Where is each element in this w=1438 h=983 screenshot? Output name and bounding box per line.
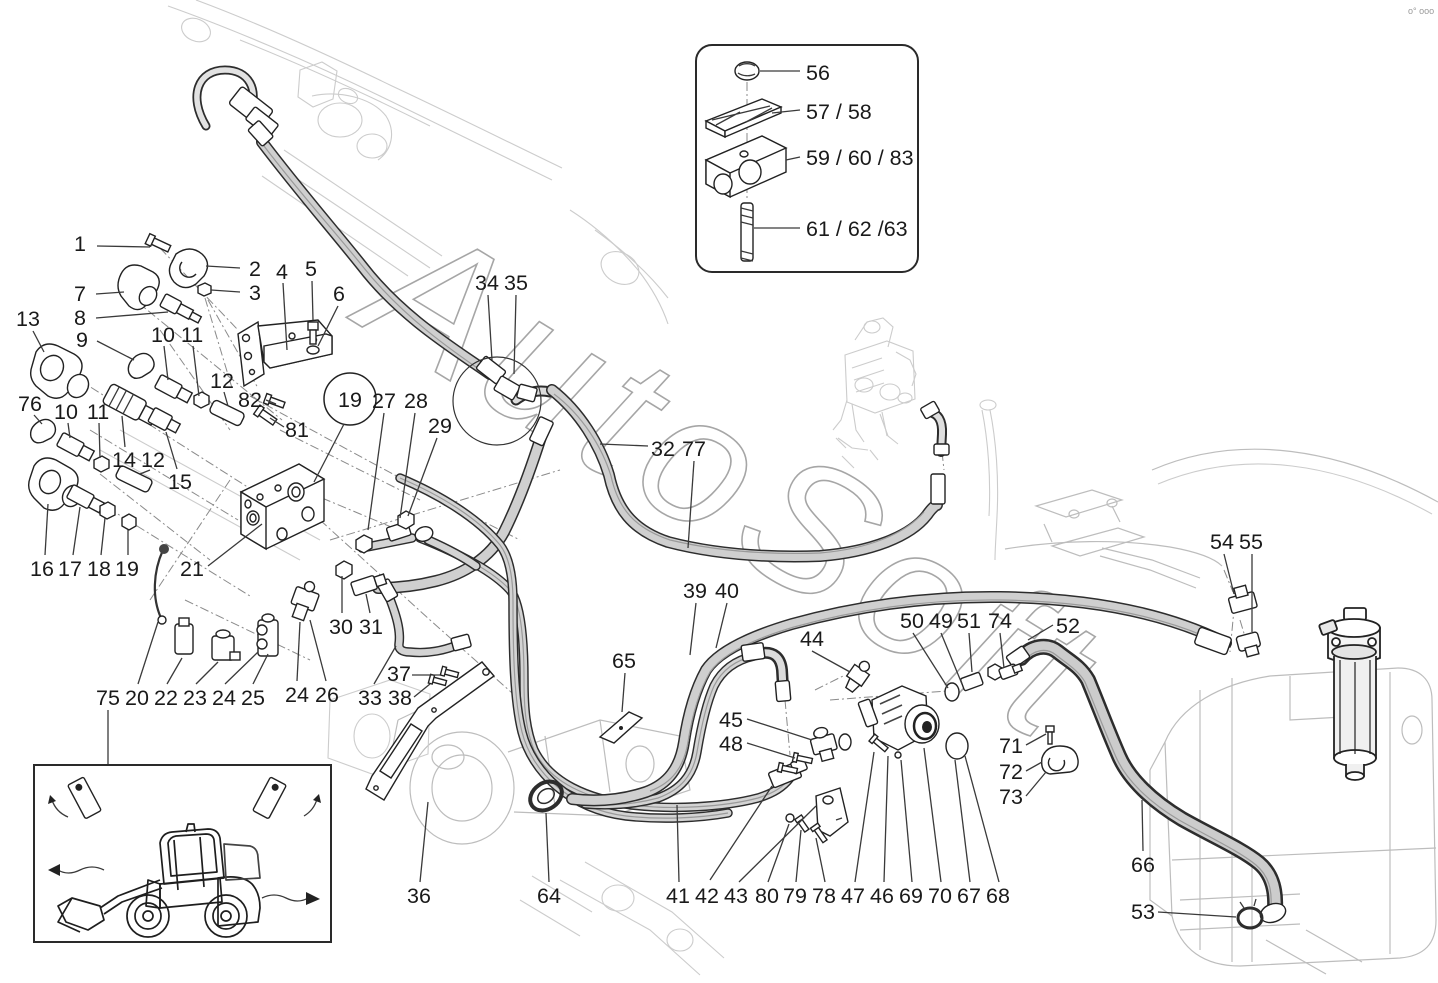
svg-text:74: 74 <box>988 609 1012 633</box>
svg-text:59 / 60 / 83: 59 / 60 / 83 <box>806 146 914 170</box>
svg-text:29: 29 <box>428 414 452 438</box>
svg-text:o° ooo: o° ooo <box>1408 6 1434 16</box>
svg-text:4: 4 <box>276 260 288 284</box>
svg-text:12: 12 <box>141 448 165 472</box>
svg-text:73: 73 <box>999 785 1023 809</box>
svg-text:46: 46 <box>870 884 894 908</box>
svg-text:43: 43 <box>724 884 748 908</box>
svg-text:10: 10 <box>151 323 175 347</box>
svg-text:78: 78 <box>812 884 836 908</box>
svg-text:39: 39 <box>683 579 707 603</box>
svg-text:5: 5 <box>305 257 317 281</box>
svg-text:26: 26 <box>315 683 339 707</box>
svg-text:55: 55 <box>1239 530 1263 554</box>
svg-text:49: 49 <box>929 609 953 633</box>
svg-text:61 / 62 /63: 61 / 62 /63 <box>806 217 908 241</box>
svg-text:75: 75 <box>96 686 120 710</box>
svg-text:13: 13 <box>16 307 40 331</box>
svg-text:11: 11 <box>181 323 203 347</box>
svg-text:16: 16 <box>30 557 54 581</box>
svg-text:70: 70 <box>928 884 952 908</box>
svg-text:53: 53 <box>1131 900 1155 924</box>
svg-text:22: 22 <box>154 686 178 710</box>
svg-text:36: 36 <box>407 884 431 908</box>
svg-text:71: 71 <box>999 734 1023 758</box>
svg-text:52: 52 <box>1056 614 1080 638</box>
svg-text:57 / 58: 57 / 58 <box>806 100 872 124</box>
svg-text:23: 23 <box>183 686 207 710</box>
svg-text:42: 42 <box>695 884 719 908</box>
svg-text:44: 44 <box>800 627 824 651</box>
svg-text:28: 28 <box>404 389 428 413</box>
svg-text:12: 12 <box>210 369 234 393</box>
svg-text:77: 77 <box>682 437 706 461</box>
svg-text:68: 68 <box>986 884 1010 908</box>
svg-text:51: 51 <box>957 609 981 633</box>
svg-text:27: 27 <box>372 389 396 413</box>
svg-text:30: 30 <box>329 615 353 639</box>
svg-text:80: 80 <box>755 884 779 908</box>
svg-text:69: 69 <box>899 884 923 908</box>
svg-text:56: 56 <box>806 61 830 85</box>
svg-text:79: 79 <box>783 884 807 908</box>
svg-text:37: 37 <box>387 662 411 686</box>
svg-text:31: 31 <box>359 615 383 639</box>
svg-text:24: 24 <box>212 686 236 710</box>
svg-text:2: 2 <box>249 257 261 281</box>
svg-text:45: 45 <box>719 708 743 732</box>
svg-text:8: 8 <box>74 306 86 330</box>
svg-text:9: 9 <box>76 328 88 352</box>
svg-text:50: 50 <box>900 609 924 633</box>
svg-text:18: 18 <box>87 557 111 581</box>
svg-text:20: 20 <box>125 686 149 710</box>
svg-text:41: 41 <box>666 884 690 908</box>
svg-text:72: 72 <box>999 760 1023 784</box>
svg-text:35: 35 <box>504 271 528 295</box>
svg-text:81: 81 <box>285 418 309 442</box>
svg-text:1: 1 <box>74 232 86 256</box>
svg-text:34: 34 <box>475 271 499 295</box>
svg-text:17: 17 <box>58 557 82 581</box>
svg-text:47: 47 <box>841 884 865 908</box>
svg-text:32: 32 <box>651 437 675 461</box>
svg-text:6: 6 <box>333 282 345 306</box>
svg-text:66: 66 <box>1131 853 1155 877</box>
svg-text:64: 64 <box>537 884 561 908</box>
svg-text:38: 38 <box>388 686 412 710</box>
svg-text:15: 15 <box>168 470 192 494</box>
svg-text:11: 11 <box>87 400 109 424</box>
svg-text:25: 25 <box>241 686 265 710</box>
svg-text:14: 14 <box>112 448 136 472</box>
svg-text:76: 76 <box>18 392 42 416</box>
svg-text:54: 54 <box>1210 530 1234 554</box>
svg-text:82: 82 <box>238 388 262 412</box>
svg-text:40: 40 <box>715 579 739 603</box>
svg-text:48: 48 <box>719 732 743 756</box>
svg-text:21: 21 <box>180 557 204 581</box>
svg-text:7: 7 <box>74 282 86 306</box>
svg-text:10: 10 <box>54 400 78 424</box>
svg-text:19: 19 <box>115 557 139 581</box>
svg-text:67: 67 <box>957 884 981 908</box>
svg-text:33: 33 <box>358 686 382 710</box>
svg-text:65: 65 <box>612 649 636 673</box>
svg-text:19: 19 <box>338 388 362 412</box>
svg-text:3: 3 <box>249 281 261 305</box>
svg-text:24: 24 <box>285 683 309 707</box>
